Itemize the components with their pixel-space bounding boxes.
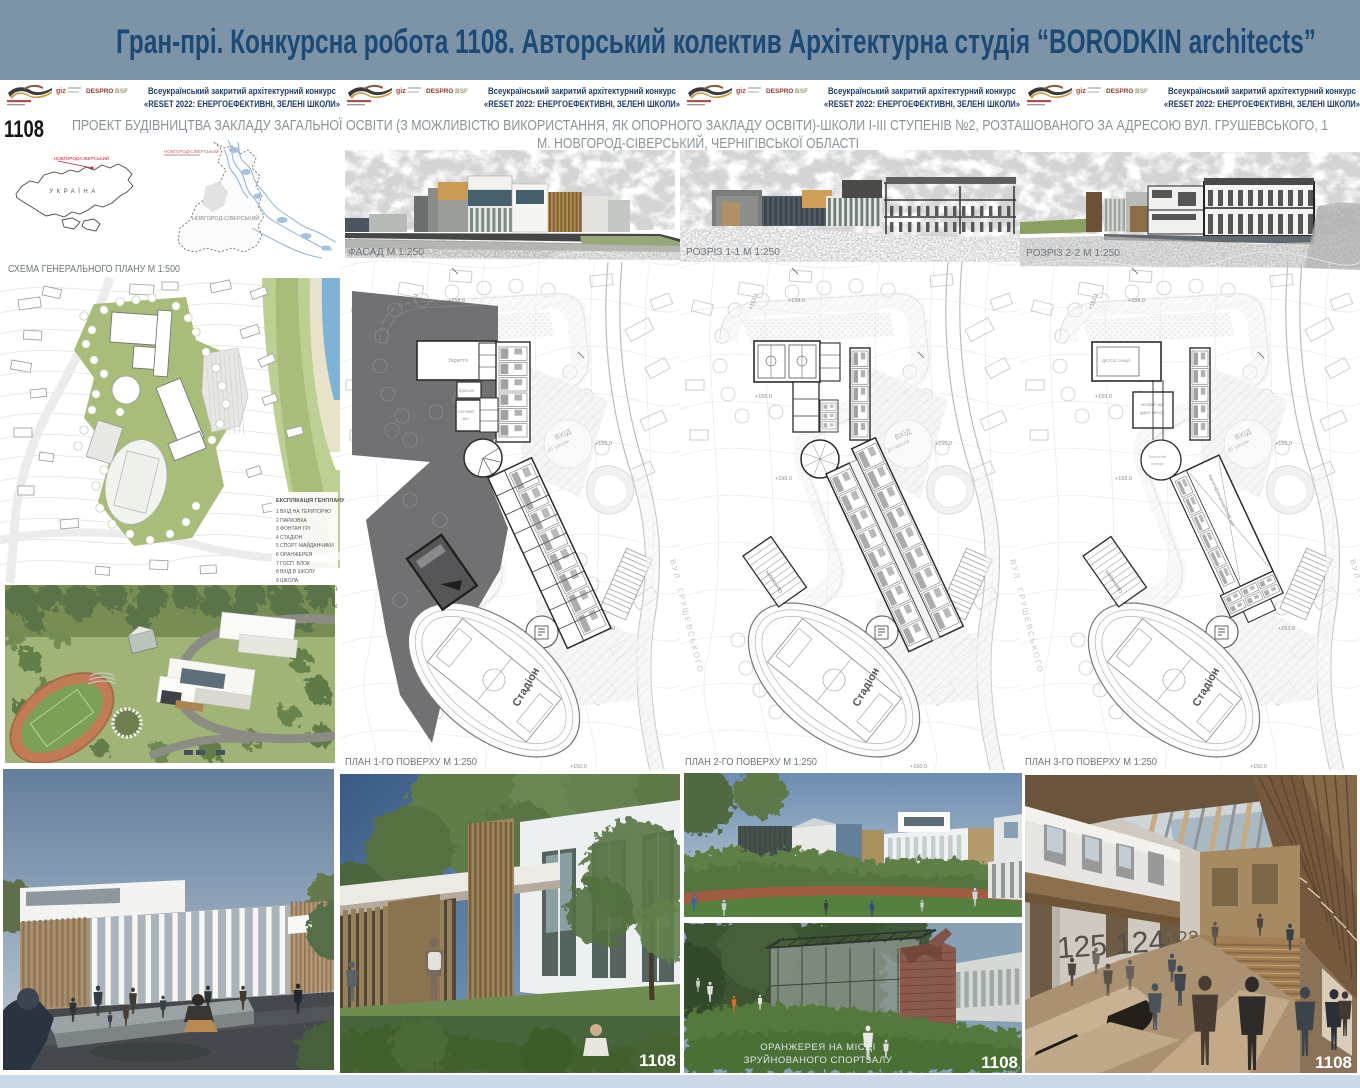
svg-text:DESPRO: DESPRO bbox=[766, 88, 793, 95]
svg-text:DESPRO: DESPRO bbox=[1106, 88, 1133, 95]
svg-text:ФАСАД М 1:250: ФАСАД М 1:250 bbox=[348, 247, 424, 258]
svg-text:1 ВХІД НА ТЕРИТОРІЮ: 1 ВХІД НА ТЕРИТОРІЮ bbox=[276, 509, 331, 515]
svg-text:6 ОРАНЖЕРЕЯ: 6 ОРАНЖЕРЕЯ bbox=[276, 552, 313, 558]
svg-text:Технічний: Технічний bbox=[1148, 454, 1166, 459]
svg-text:1108: 1108 bbox=[639, 1051, 676, 1070]
svg-text:3 ФОНТАН ГРІ: 3 ФОНТАН ГРІ bbox=[276, 526, 310, 532]
svg-text:BSF: BSF bbox=[115, 88, 128, 95]
svg-text:НОВГОРОД-СІВЕРСЬКИЙ: НОВГОРОД-СІВЕРСЬКИЙ bbox=[192, 214, 259, 222]
svg-text:+150.0: +150.0 bbox=[1250, 764, 1267, 770]
svg-text:7 ГОСП. БЛОК: 7 ГОСП. БЛОК bbox=[276, 561, 310, 567]
svg-text:друге світло: друге світло bbox=[1140, 410, 1164, 415]
svg-text:НОВГОРОД-СІВЕРСЬКИЙ: НОВГОРОД-СІВЕРСЬКИЙ bbox=[54, 154, 109, 161]
svg-text:ВУЛ. ГРУШЕВСЬКОГО: ВУЛ. ГРУШЕВСЬКОГО bbox=[1008, 558, 1045, 675]
svg-text:ВУЛ. ГРУШЕВСЬКОГО: ВУЛ. ГРУШЕВСЬКОГО bbox=[1348, 558, 1360, 675]
svg-text:Всеукраїнський закритий архіте: Всеукраїнський закритий архітектурний ко… bbox=[828, 86, 1016, 97]
svg-text:+155.0: +155.0 bbox=[935, 441, 952, 447]
svg-text:8 ВХІД В ШКОЛУ: 8 ВХІД В ШКОЛУ bbox=[276, 569, 316, 575]
svg-text:+155.0: +155.0 bbox=[1095, 394, 1112, 400]
svg-text:+153.0: +153.0 bbox=[1278, 626, 1295, 632]
svg-text:«RESET 2022: ЕНЕРГОЕФЕКТИВНІ,: «RESET 2022: ЕНЕРГОЕФЕКТИВНІ, ЗЕЛЕНІ ШКО… bbox=[824, 99, 1020, 110]
svg-text:ПЛАН 1-ГО ПОВЕРХУ М 1:250: ПЛАН 1-ГО ПОВЕРХУ М 1:250 bbox=[345, 756, 477, 768]
svg-text:5 СПОРТ МАЙДАНЧИКИ: 5 СПОРТ МАЙДАНЧИКИ bbox=[276, 541, 334, 549]
svg-text:УКРАЇНА: УКРАЇНА bbox=[49, 188, 98, 195]
svg-text:РОЗРІЗ 2-2 М 1:250: РОЗРІЗ 2-2 М 1:250 bbox=[1026, 248, 1120, 259]
svg-text:giz: giz bbox=[736, 88, 746, 95]
svg-text:поверх: поверх bbox=[1151, 461, 1164, 466]
svg-text:giz: giz bbox=[56, 88, 66, 95]
svg-text:ВУЛ. ГРУШЕВСЬКОГО: ВУЛ. ГРУШЕВСЬКОГО bbox=[668, 558, 705, 675]
svg-text:Укриття: Укриття bbox=[448, 358, 468, 364]
svg-text:4 СТАДІОН: 4 СТАДІОН bbox=[276, 535, 303, 541]
svg-text:+156.0: +156.0 bbox=[1115, 476, 1132, 482]
svg-text:РОЗРІЗ 1-1 М 1:250: РОЗРІЗ 1-1 М 1:250 bbox=[686, 247, 780, 258]
svg-text:DESPRO: DESPRO bbox=[86, 88, 113, 95]
svg-text:НОВГОРОД-СІВЕРСЬКИЙ: НОВГОРОД-СІВЕРСЬКИЙ bbox=[164, 147, 219, 154]
svg-text:ЕКСПЛІКАЦІЯ ГЕНПЛАНУ: ЕКСПЛІКАЦІЯ ГЕНПЛАНУ bbox=[276, 498, 345, 504]
svg-text:ПЛАН 3-ГО ПОВЕРХУ М 1:250: ПЛАН 3-ГО ПОВЕРХУ М 1:250 bbox=[1025, 756, 1157, 768]
svg-text:ДЮСШ секції: ДЮСШ секції bbox=[1102, 358, 1130, 363]
svg-text:Гран-прі. Конкурсна робота 110: Гран-прі. Конкурсна робота 1108. Авторсь… bbox=[116, 23, 1316, 61]
svg-text:+155.0: +155.0 bbox=[1275, 441, 1292, 447]
svg-text:зал: зал bbox=[462, 416, 469, 421]
svg-text:1108: 1108 bbox=[1315, 1053, 1352, 1072]
svg-text:1108: 1108 bbox=[4, 116, 44, 143]
svg-text:Їдальня: Їдальня bbox=[459, 388, 474, 393]
svg-text:ЗРУЙНОВАНОГО СПОРТЗАЛУ: ЗРУЙНОВАНОГО СПОРТЗАЛУ bbox=[744, 1054, 893, 1066]
svg-text:+158.0: +158.0 bbox=[788, 298, 805, 304]
svg-text:BSF: BSF bbox=[795, 88, 808, 95]
svg-text:М. НОВГОРОД-СІВЕРСЬКИЙ, ЧЕРНІГ: М. НОВГОРОД-СІВЕРСЬКИЙ, ЧЕРНІГІВСЬКОЇ ОБ… bbox=[537, 134, 859, 152]
svg-text:+150.0: +150.0 bbox=[910, 764, 927, 770]
svg-text:9 ШКОЛА: 9 ШКОЛА bbox=[276, 578, 299, 584]
svg-text:giz: giz bbox=[1076, 88, 1086, 95]
svg-text:2 ПАРКОВКА: 2 ПАРКОВКА bbox=[276, 518, 307, 524]
svg-text:1108: 1108 bbox=[981, 1053, 1018, 1072]
svg-text:BSF: BSF bbox=[455, 88, 468, 95]
svg-text:giz: giz bbox=[396, 88, 406, 95]
svg-text:«RESET 2022: ЕНЕРГОЕФЕКТИВНІ,: «RESET 2022: ЕНЕРГОЕФЕКТИВНІ, ЗЕЛЕНІ ШКО… bbox=[484, 99, 680, 110]
svg-text:+156.0: +156.0 bbox=[775, 476, 792, 482]
svg-text:«RESET 2022: ЕНЕРГОЕФЕКТИВНІ,: «RESET 2022: ЕНЕРГОЕФЕКТИВНІ, ЗЕЛЕНІ ШКО… bbox=[144, 99, 340, 110]
svg-text:+155.0: +155.0 bbox=[755, 394, 772, 400]
svg-text:Актовий зал: Актовий зал bbox=[1140, 402, 1164, 407]
svg-text:DESPRO: DESPRO bbox=[426, 88, 453, 95]
svg-text:Всеукраїнський закритий архіте: Всеукраїнський закритий архітектурний ко… bbox=[488, 86, 676, 97]
svg-text:ПЛАН 2-ГО ПОВЕРХУ М 1:250: ПЛАН 2-ГО ПОВЕРХУ М 1:250 bbox=[685, 756, 817, 768]
svg-text:BSF: BSF bbox=[1135, 88, 1148, 95]
svg-text:ПРОЕКТ БУДІВНИЦТВА ЗАКЛАДУ ЗАГ: ПРОЕКТ БУДІВНИЦТВА ЗАКЛАДУ ЗАГАЛЬНОЇ ОСВ… bbox=[72, 117, 1328, 134]
svg-text:+158.0: +158.0 bbox=[1128, 298, 1145, 304]
svg-text:+150.0: +150.0 bbox=[570, 764, 587, 770]
svg-text:ОРАНЖЕРЕЯ НА МІСЦІ: ОРАНЖЕРЕЯ НА МІСЦІ bbox=[760, 1042, 876, 1053]
svg-text:+155.0: +155.0 bbox=[595, 441, 612, 447]
svg-text:Всеукраїнський закритий архіте: Всеукраїнський закритий архітектурний ко… bbox=[1168, 86, 1356, 97]
svg-text:«RESET 2022: ЕНЕРГОЕФЕКТИВНІ,: «RESET 2022: ЕНЕРГОЕФЕКТИВНІ, ЗЕЛЕНІ ШКО… bbox=[1164, 99, 1360, 110]
svg-text:СХЕМА ГЕНЕРАЛЬНОГО ПЛАНУ М 1:5: СХЕМА ГЕНЕРАЛЬНОГО ПЛАНУ М 1:500 bbox=[8, 264, 180, 275]
svg-text:Всеукраїнський закритий архіте: Всеукраїнський закритий архітектурний ко… bbox=[148, 86, 336, 97]
svg-text:Актовий: Актовий bbox=[458, 409, 474, 414]
